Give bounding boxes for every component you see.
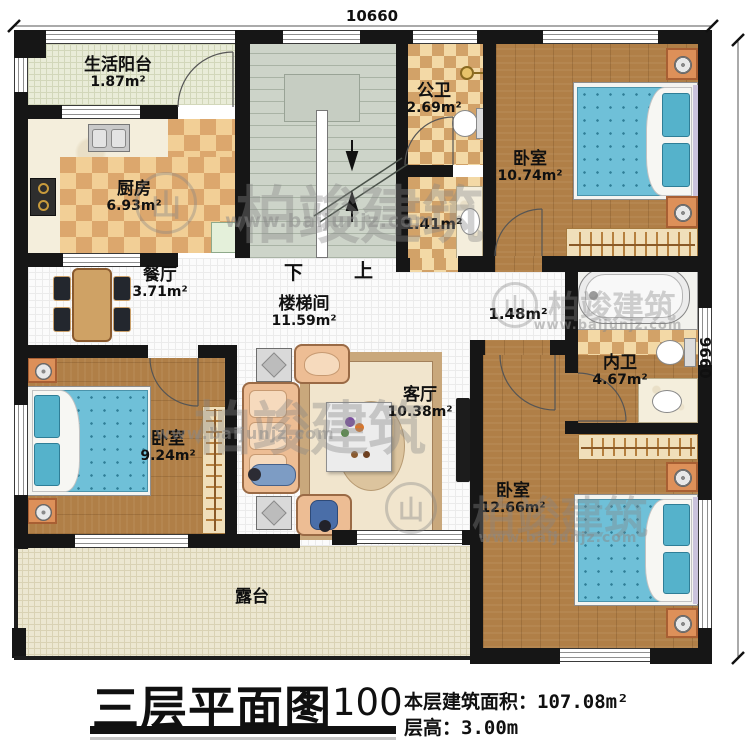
wall	[565, 272, 578, 373]
wall	[12, 628, 26, 658]
room-label-hall-nook: 1.48m²	[488, 306, 547, 323]
room-label-kitchen: 厨房 6.93m²	[106, 180, 161, 215]
wall	[14, 30, 46, 58]
nightstand	[27, 357, 57, 383]
window	[14, 58, 28, 92]
pillow	[663, 504, 690, 546]
room-area: 1.41m²	[403, 216, 462, 233]
kitchen-floor-tile	[168, 119, 237, 157]
burner-icon	[38, 183, 49, 194]
pillow	[34, 443, 60, 486]
bathtub	[578, 268, 690, 324]
stair-railing	[316, 110, 328, 258]
wall	[550, 340, 565, 355]
wall	[225, 345, 237, 547]
floor-area-label: 本层建筑面积：	[404, 691, 537, 713]
sink-icon	[460, 208, 480, 235]
wall	[396, 30, 408, 272]
armchair	[294, 344, 350, 384]
table-lamp-icon	[35, 504, 52, 521]
floor-area-row: 本层建筑面积：107.08m²	[404, 687, 629, 714]
wardrobe-hangers	[578, 434, 698, 460]
room-name: 露台	[235, 588, 269, 607]
table-lamp-icon	[674, 204, 692, 222]
room-name: 客厅	[387, 386, 452, 405]
wall	[235, 30, 250, 258]
wall	[462, 530, 483, 545]
wall	[332, 530, 357, 545]
dining-chair	[113, 276, 131, 301]
burner-icon	[38, 200, 49, 211]
bed	[573, 82, 698, 200]
title-underline-shadow	[90, 737, 396, 740]
floor-height-value: 3.00m	[461, 717, 518, 739]
table-lamp-icon	[674, 615, 692, 633]
window	[698, 500, 712, 628]
flower-decor	[345, 417, 355, 427]
room-area: 2.69m²	[406, 101, 461, 117]
window	[46, 30, 235, 44]
room-area: 9.24m²	[140, 449, 195, 465]
nightstand	[666, 196, 698, 228]
room-area: 3.71m²	[132, 285, 187, 301]
person-head	[248, 468, 261, 481]
floor-height-row: 层高：3.00m	[404, 713, 518, 740]
room-area: 10.38m²	[387, 405, 452, 421]
nightstand	[27, 498, 57, 524]
room-area: 1.87m²	[84, 75, 152, 91]
stove-icon	[30, 178, 56, 216]
plan-scale: 1:100	[296, 681, 403, 724]
room-label-wash-area: 1.41m²	[403, 216, 462, 233]
dimension-right: 9660	[696, 337, 714, 379]
room-label-terrace: 露台	[235, 588, 269, 607]
nightstand	[666, 608, 698, 638]
window	[283, 30, 360, 44]
wall	[458, 256, 495, 272]
nightstand	[666, 48, 698, 80]
side-table-top	[261, 352, 286, 377]
pillow	[34, 395, 60, 438]
bed	[27, 386, 151, 496]
room-label-stairwell: 楼梯间 11.59m²	[271, 295, 336, 330]
dining-chair	[53, 276, 71, 301]
sofa-cushion	[249, 390, 287, 418]
room-label-living: 客厅 10.38m²	[387, 386, 452, 421]
dimension-tick	[732, 34, 744, 46]
window	[413, 30, 477, 44]
room-name: 卧室	[480, 482, 545, 501]
faucet-icon	[589, 291, 598, 300]
room-area: 1.48m²	[488, 306, 547, 323]
title-underline	[90, 726, 396, 734]
wall	[14, 92, 28, 345]
kitchen-sink	[88, 124, 130, 152]
wall	[28, 345, 148, 358]
room-name: 厨房	[106, 180, 161, 199]
dimension-top: 10660	[346, 7, 398, 25]
room-name: 卧室	[497, 150, 562, 169]
room-label-bedroom-se: 卧室 12.66m²	[480, 482, 545, 517]
door-threshold	[485, 340, 550, 355]
dining-chair	[113, 307, 131, 332]
nightstand	[666, 462, 698, 492]
room-label-balcony: 生活阳台 1.87m²	[84, 56, 152, 91]
shower-head-icon	[460, 66, 474, 80]
room-label-public-bath: 公卫 2.69m²	[406, 82, 461, 117]
room-label-dining: 餐厅 3.71m²	[132, 266, 187, 301]
window	[62, 105, 140, 119]
pillow	[662, 93, 690, 137]
sofa	[242, 382, 300, 494]
room-area: 12.66m²	[480, 501, 545, 517]
sink-icon	[652, 390, 682, 413]
wall	[477, 30, 543, 44]
flower-decor	[355, 423, 364, 432]
table-decor	[363, 451, 370, 458]
room-label-bedroom-ne: 卧室 10.74m²	[497, 150, 562, 185]
wall	[14, 534, 75, 548]
stair-down-label: 下	[284, 258, 303, 285]
room-name: 楼梯间	[271, 295, 336, 314]
table-lamp-icon	[35, 363, 52, 380]
threshold	[410, 258, 458, 272]
room-area: 6.93m²	[106, 199, 161, 215]
sink-basin	[111, 129, 126, 148]
wall	[470, 648, 560, 664]
armchair-cushion	[304, 352, 340, 376]
tv	[456, 398, 470, 482]
room-area: 10.74m²	[497, 169, 562, 185]
wall	[403, 165, 453, 177]
room-area: 11.59m²	[271, 314, 336, 330]
room-name: 生活阳台	[84, 56, 152, 75]
wall	[470, 340, 485, 355]
sofa-cushion	[249, 422, 287, 450]
wall	[14, 345, 28, 405]
room-name: 公卫	[406, 82, 461, 101]
wall	[14, 253, 63, 267]
pillow	[663, 552, 690, 594]
stair-up-label: 上	[354, 256, 373, 283]
closet-rod	[581, 447, 695, 449]
coffee-table	[326, 402, 392, 472]
room-name: 内卫	[592, 354, 647, 373]
side-table-top	[261, 500, 286, 525]
window	[75, 534, 188, 548]
window	[63, 253, 140, 267]
toilet-tank	[684, 338, 696, 367]
window	[560, 648, 650, 662]
wall	[14, 105, 62, 119]
terrace-parapet	[14, 656, 472, 660]
table-lamp-icon	[674, 469, 692, 487]
bathtub-basin	[585, 274, 683, 318]
wall	[140, 105, 178, 119]
toilet-icon	[656, 340, 684, 365]
room-label-bedroom-w: 卧室 9.24m²	[140, 430, 195, 465]
table-lamp-icon	[674, 56, 692, 74]
wardrobe-hangers	[202, 406, 226, 534]
room-name: 餐厅	[132, 266, 187, 285]
side-table	[256, 496, 292, 530]
wall	[565, 423, 712, 434]
dining-table	[72, 268, 112, 342]
flower-decor	[341, 429, 349, 437]
floor-plan-canvas: 10660 9660 生活阳台 1.87m² 厨房 6.93m² 餐厅 3.71…	[0, 0, 750, 749]
dining-chair	[53, 307, 71, 332]
sink-basin	[92, 129, 107, 148]
pillow	[662, 143, 690, 187]
table-decor	[351, 451, 358, 458]
side-table	[256, 348, 292, 382]
room-area: 4.67m²	[592, 373, 647, 389]
wall	[396, 258, 410, 272]
floor-area-value: 107.08m²	[537, 691, 629, 713]
wall	[542, 256, 712, 272]
room-label-master-bath: 内卫 4.67m²	[592, 354, 647, 389]
window	[357, 530, 462, 544]
window	[543, 30, 658, 44]
room-name: 卧室	[140, 430, 195, 449]
wall	[698, 628, 712, 664]
dimension-tick	[732, 652, 744, 664]
bed	[574, 494, 698, 606]
floor-height-label: 层高：	[404, 717, 461, 739]
wall	[483, 44, 496, 256]
window	[14, 405, 28, 495]
door-threshold	[495, 256, 542, 272]
closet-rod	[569, 244, 695, 246]
wall	[188, 534, 300, 548]
person-head	[319, 520, 331, 532]
closet-rod	[214, 409, 216, 531]
fridge	[211, 222, 237, 253]
